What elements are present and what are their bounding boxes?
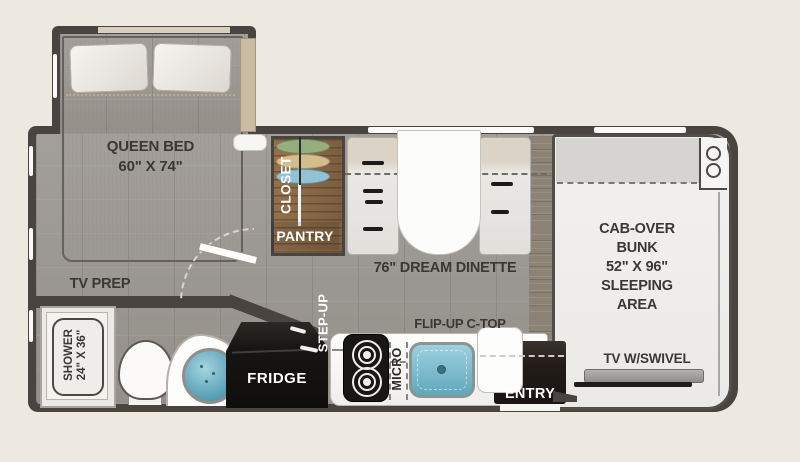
dinette-bench-left — [347, 137, 399, 255]
bunk-label-line5: AREA — [560, 296, 714, 315]
bunk-label-line4: SLEEPING — [560, 277, 714, 296]
window — [594, 127, 686, 133]
pantry-label: PANTRY — [271, 228, 339, 244]
entry-label: ENTRY — [494, 386, 566, 402]
kitchen-sink — [409, 342, 475, 398]
shower-label: SHOWER 24" X 36" — [63, 329, 89, 381]
seat-latch — [362, 161, 384, 165]
microwave-dashed-line — [406, 342, 408, 400]
queen-bed-label-line2: 60" X 74" — [62, 157, 239, 177]
tv-swivel-label: TV W/SWIVEL — [568, 351, 726, 366]
tv-prep-label: TV PREP — [38, 276, 162, 292]
cab-over-bunk-label: CAB-OVER BUNK 52" X 96" SLEEPING AREA — [560, 220, 714, 315]
fridge — [226, 322, 328, 408]
seat-latch — [363, 227, 383, 231]
burner-icon — [352, 367, 382, 397]
bunk-head-strip — [556, 138, 700, 183]
window — [53, 54, 57, 98]
cupholder-icon — [706, 163, 721, 178]
shower-label-line1: SHOWER — [63, 329, 76, 381]
entry-dashed-line — [480, 355, 564, 357]
dinette-table — [397, 130, 481, 255]
dinette-bench-right — [479, 137, 531, 255]
shirt-icon — [276, 139, 330, 154]
flip-up-ctop-label: FLIP-UP C-TOP — [393, 316, 527, 331]
bunk-label-line1: CAB-OVER — [560, 220, 714, 239]
bed-fold-line — [66, 94, 235, 96]
cupholder-icon — [706, 146, 721, 161]
bunk-dashed-line — [557, 182, 697, 184]
pillow — [152, 43, 232, 94]
tv-unit-shadow — [574, 382, 692, 387]
bunk-label-line2: BUNK — [560, 239, 714, 258]
window — [29, 310, 33, 342]
rv-floorplan: QUEEN BED 60" X 74" TV PREP SHOWER 24" X… — [0, 0, 800, 462]
seat-latch — [365, 200, 383, 204]
tv-unit — [584, 369, 704, 383]
flip-up-counter — [477, 327, 523, 393]
sink-speckle — [212, 372, 215, 375]
sink-speckle — [200, 365, 203, 368]
seat-latch — [491, 182, 513, 186]
headboard-lining — [98, 27, 230, 33]
window — [29, 146, 33, 176]
window — [29, 228, 33, 260]
micro-label: MICRO — [390, 347, 404, 390]
bunk-label-line3: 52" X 96" — [560, 258, 714, 277]
seat-latch — [363, 189, 383, 193]
queen-bed-label: QUEEN BED 60" X 74" — [62, 137, 239, 177]
queen-bed-label-line1: QUEEN BED — [62, 137, 239, 157]
pillow — [69, 43, 149, 94]
burner-icon — [352, 340, 382, 370]
seat-latch — [491, 210, 509, 214]
fridge-label: FRIDGE — [226, 370, 328, 387]
dinette-label: 76" DREAM DINETTE — [340, 260, 550, 276]
sink-speckle — [205, 380, 208, 383]
shower-label-line2: 24" X 36" — [76, 329, 89, 381]
entry-doorstep — [500, 404, 560, 411]
step-up-label: STEP-UP — [316, 294, 331, 352]
bedside-cabinet — [240, 38, 256, 132]
closet-label: CLOSET — [279, 156, 294, 214]
